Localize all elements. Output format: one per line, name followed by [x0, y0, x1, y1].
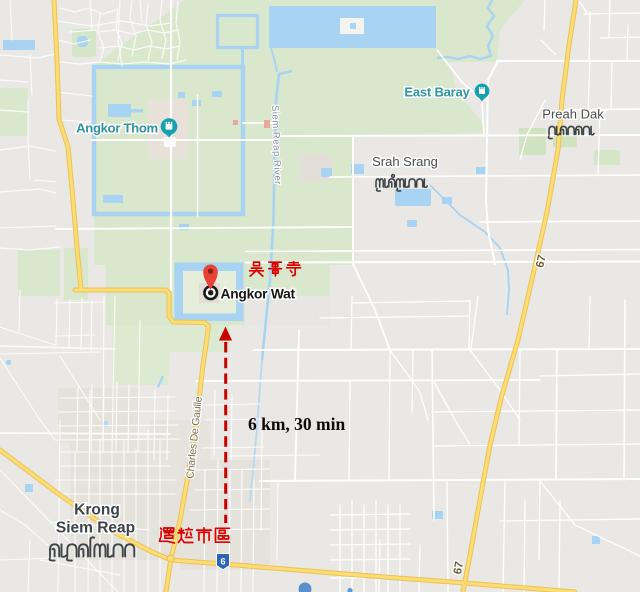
svg-text:6: 6: [220, 557, 225, 568]
svg-text:Srah Srang: Srah Srang: [372, 154, 438, 169]
svg-text:Angkor Wat: Angkor Wat: [221, 286, 296, 301]
svg-text:Preah Dak: Preah Dak: [542, 107, 604, 122]
svg-text:Krong: Krong: [74, 502, 120, 519]
svg-text:East Baray: East Baray: [404, 85, 470, 100]
svg-text:Siem Reap: Siem Reap: [56, 520, 135, 537]
svg-text:6 km, 30 min: 6 km, 30 min: [248, 414, 346, 434]
svg-text:Angkor Thom: Angkor Thom: [76, 121, 158, 136]
svg-text:67: 67: [452, 561, 466, 576]
